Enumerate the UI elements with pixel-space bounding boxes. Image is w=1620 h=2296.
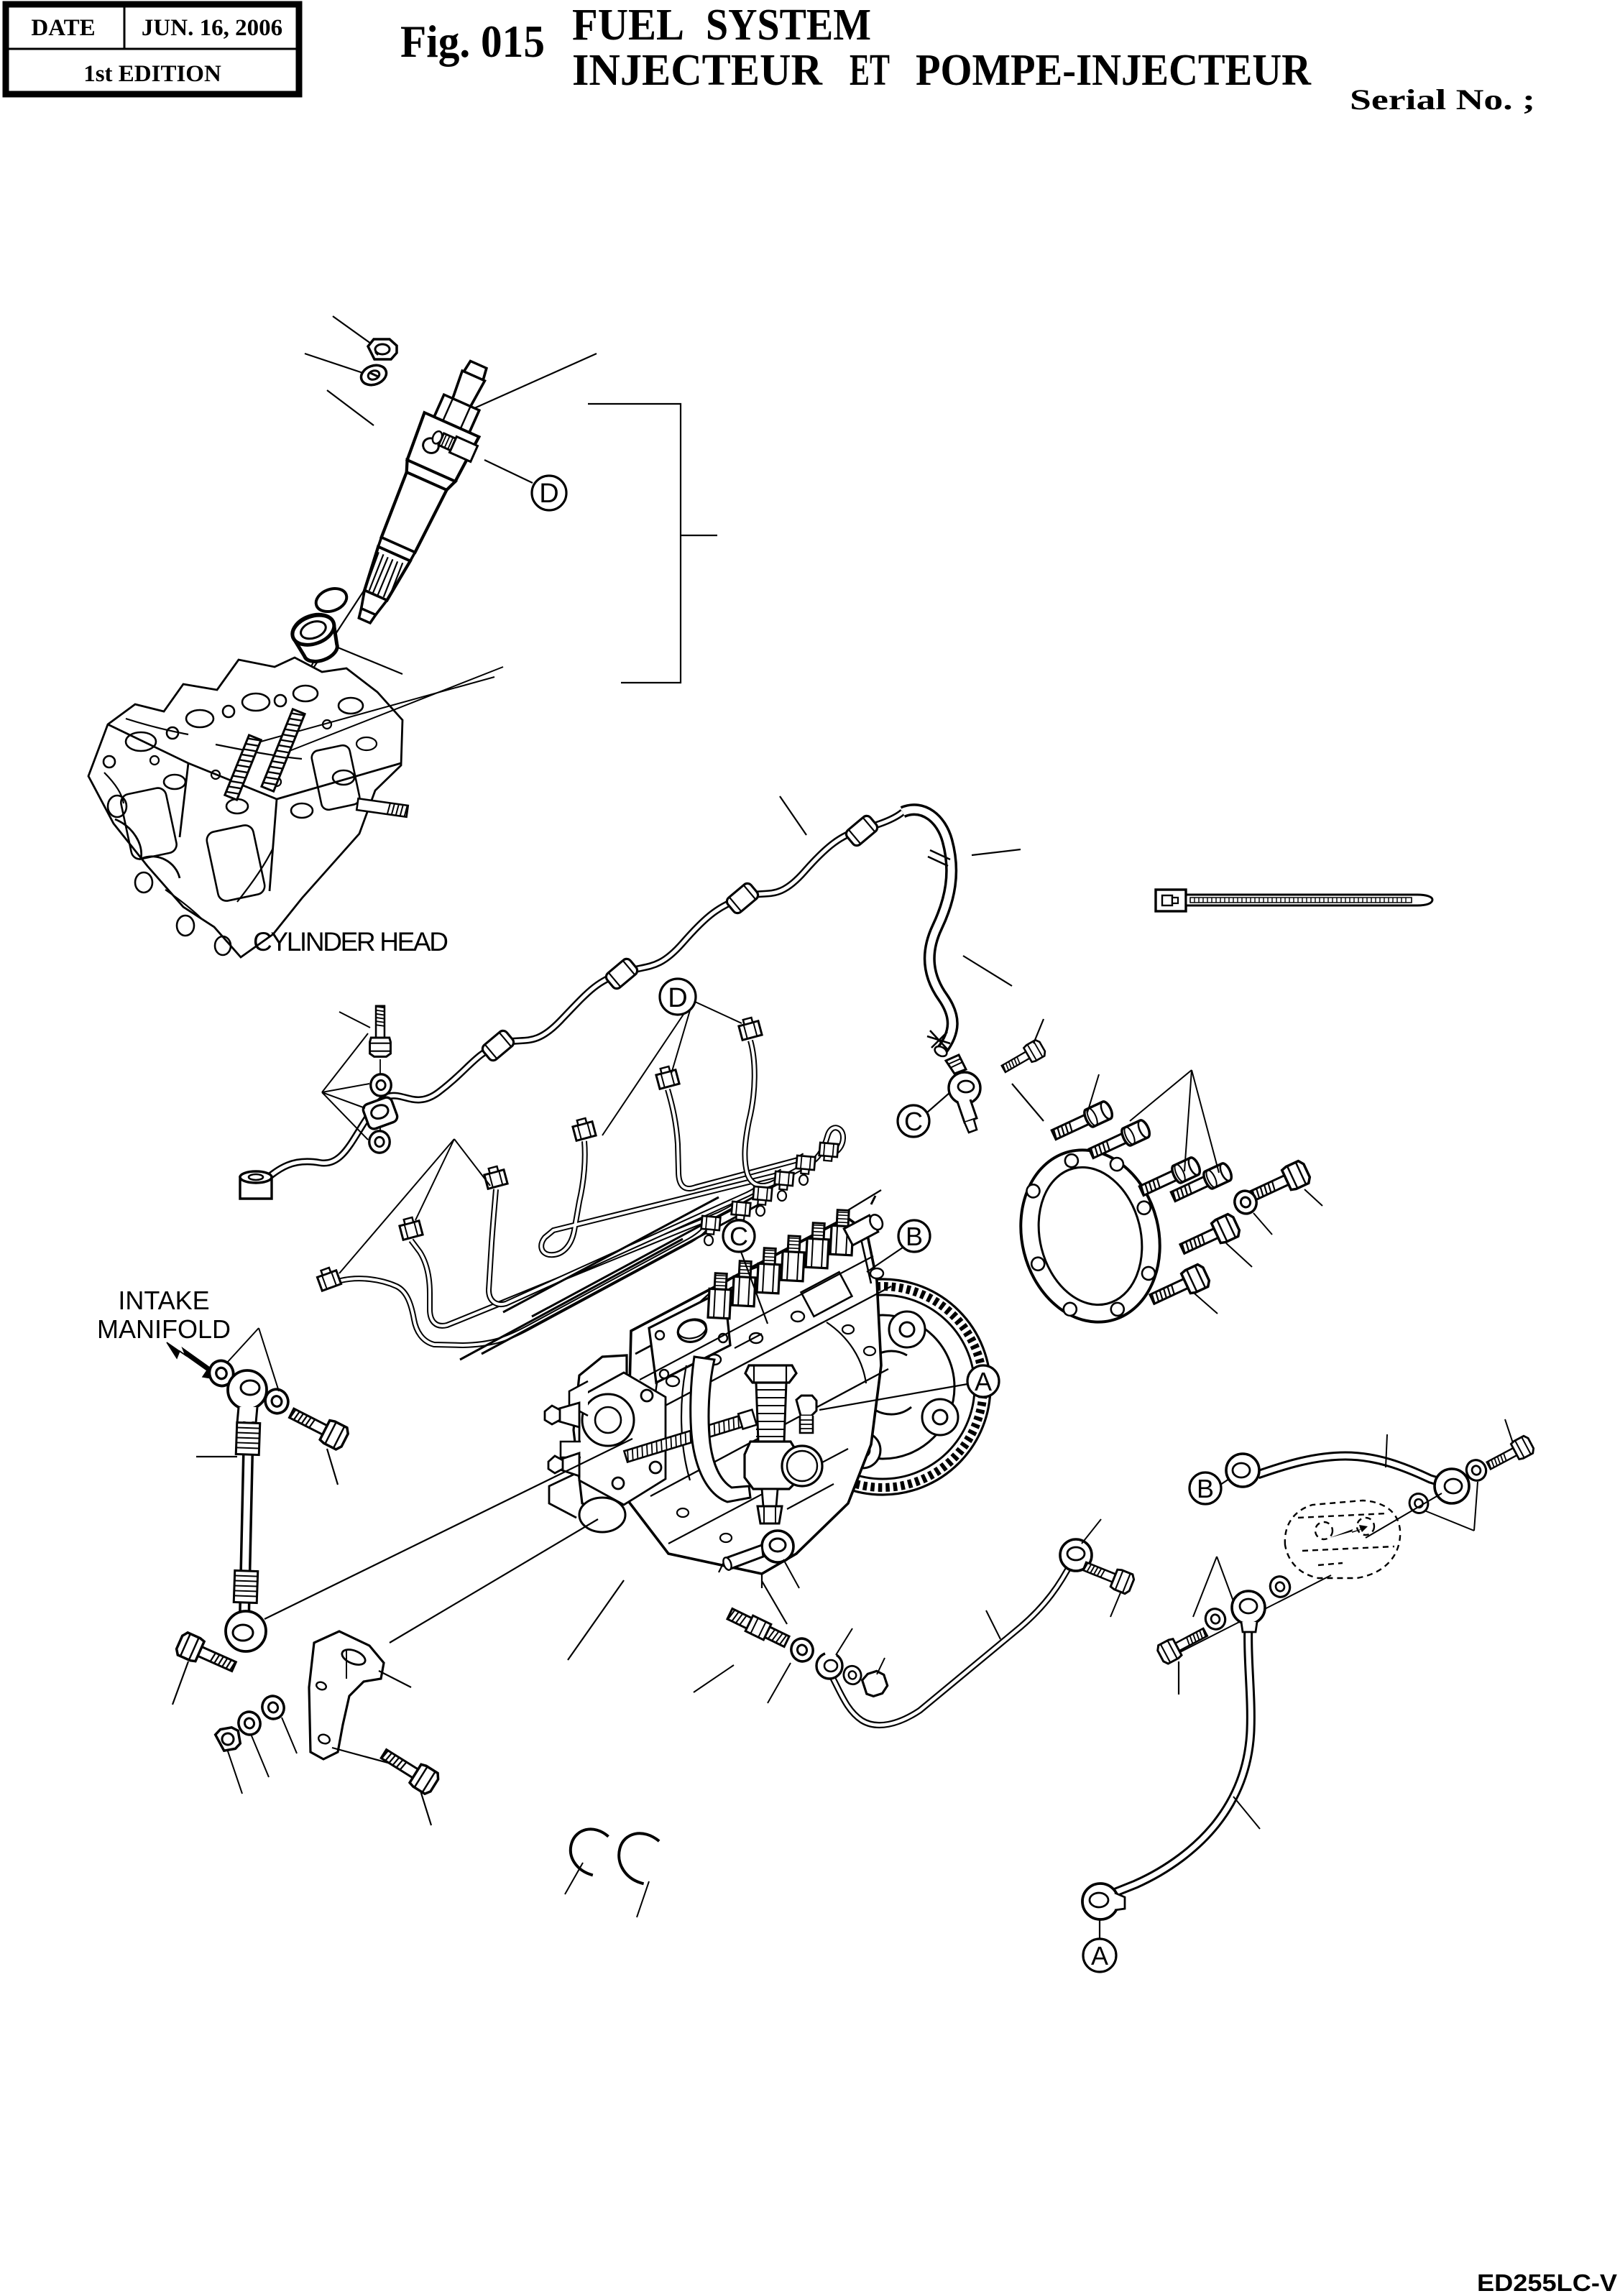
svg-text:A: A	[975, 1367, 992, 1396]
svg-text:Serial No. ;: Serial No. ;	[1350, 83, 1535, 116]
svg-text:C: C	[904, 1107, 923, 1136]
svg-text:INJECTEUR: INJECTEUR	[572, 46, 823, 95]
svg-text:C: C	[730, 1222, 748, 1251]
svg-text:MANIFOLD: MANIFOLD	[97, 1314, 231, 1344]
svg-text:D: D	[539, 479, 558, 509]
svg-text:D: D	[668, 983, 687, 1013]
svg-text:B: B	[906, 1222, 923, 1251]
svg-text:B: B	[1197, 1474, 1214, 1503]
svg-text:ET: ET	[850, 46, 890, 95]
svg-text:Fig. 015: Fig. 015	[400, 16, 545, 67]
svg-text:JUN. 16, 2006: JUN. 16, 2006	[142, 15, 282, 41]
svg-text:POMPE-INJECTEUR: POMPE-INJECTEUR	[916, 46, 1312, 95]
svg-text:A: A	[1091, 1941, 1108, 1970]
svg-text:DATE: DATE	[31, 15, 95, 41]
svg-text:SYSTEM: SYSTEM	[706, 1, 871, 50]
svg-text:CYLINDER HEAD: CYLINDER HEAD	[253, 927, 448, 956]
svg-text:ED255LC-V: ED255LC-V	[1477, 2269, 1617, 2296]
svg-text:FUEL: FUEL	[572, 1, 684, 50]
svg-text:INTAKE: INTAKE	[118, 1286, 209, 1315]
svg-text:1st EDITION: 1st EDITION	[83, 61, 221, 87]
